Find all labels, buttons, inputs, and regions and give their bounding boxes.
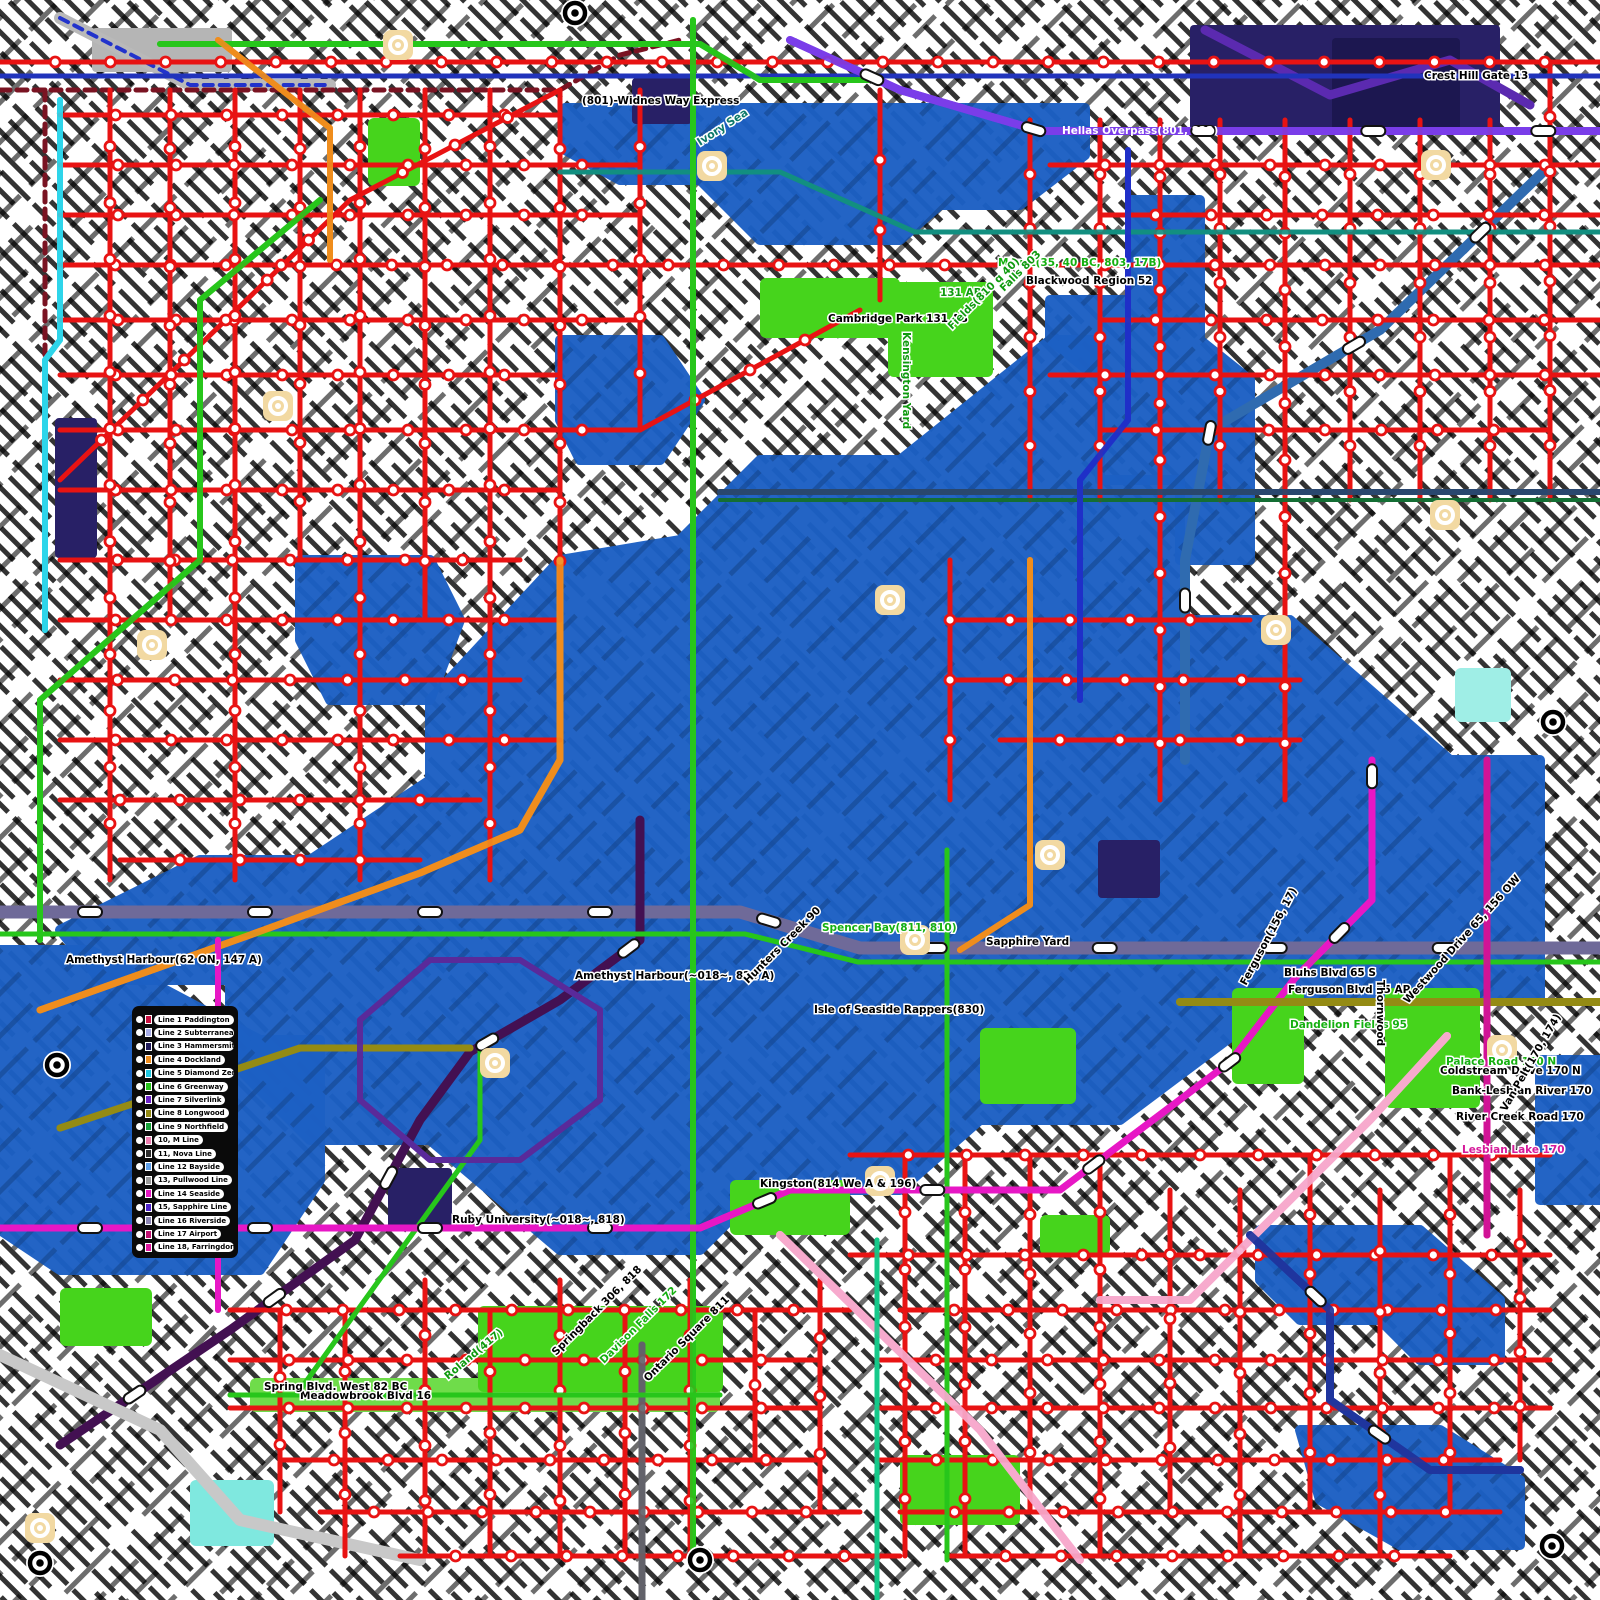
bus-stop[interactable] [1264, 425, 1274, 435]
bus-stop[interactable] [931, 1355, 941, 1365]
bus-stop[interactable] [815, 1391, 825, 1401]
bus-stop[interactable] [1265, 160, 1275, 170]
bus-stop[interactable] [1428, 210, 1438, 220]
bus-stop[interactable] [230, 254, 240, 264]
bus-stop[interactable] [900, 1436, 910, 1446]
bus-stop[interactable] [732, 1305, 742, 1315]
bus-stop[interactable] [1059, 1507, 1069, 1517]
bus-stop[interactable] [1445, 1269, 1455, 1279]
station-pill[interactable] [1361, 126, 1385, 136]
bus-stop[interactable] [987, 1403, 997, 1413]
bus-stop[interactable] [1125, 615, 1135, 625]
bus-stop[interactable] [461, 160, 471, 170]
bus-stop[interactable] [171, 160, 181, 170]
bus-stop[interactable] [304, 235, 314, 245]
bus-stop[interactable] [1280, 285, 1290, 295]
bus-stop[interactable] [519, 315, 529, 325]
bus-stop[interactable] [340, 1428, 350, 1438]
bus-stop[interactable] [1044, 1455, 1054, 1465]
bus-stop[interactable] [1375, 1307, 1385, 1317]
bus-stop[interactable] [230, 706, 240, 716]
bus-stop[interactable] [1095, 1494, 1105, 1504]
bus-stop[interactable] [1266, 1355, 1276, 1365]
bus-stop[interactable] [960, 1322, 970, 1332]
bus-stop[interactable] [1155, 568, 1165, 578]
bus-stop[interactable] [281, 1305, 291, 1315]
bus-stop[interactable] [1305, 1269, 1315, 1279]
bus-stop[interactable] [1095, 1322, 1105, 1332]
bus-stop[interactable] [485, 311, 495, 321]
bus-stop[interactable] [1055, 735, 1065, 745]
bus-stop[interactable] [1375, 1490, 1385, 1500]
bus-stop[interactable] [756, 1355, 766, 1365]
bus-stop[interactable] [355, 141, 365, 151]
bus-stop[interactable] [420, 438, 430, 448]
bus-stop[interactable] [1155, 160, 1165, 170]
bus-stop[interactable] [1265, 370, 1275, 380]
bus-stop[interactable] [579, 1355, 589, 1365]
bus-stop[interactable] [113, 210, 123, 220]
bus-stop[interactable] [485, 198, 495, 208]
bus-stop[interactable] [1178, 675, 1188, 685]
bus-stop[interactable] [1098, 1403, 1108, 1413]
bus-stop[interactable] [1270, 1455, 1280, 1465]
bus-stop[interactable] [1489, 425, 1499, 435]
bus-stop[interactable] [1025, 1388, 1035, 1398]
bus-stop[interactable] [577, 160, 587, 170]
bus-stop[interactable] [1317, 315, 1327, 325]
bus-stop[interactable] [1237, 675, 1247, 685]
bus-stop[interactable] [1378, 1355, 1388, 1365]
bus-stop[interactable] [1334, 1551, 1344, 1561]
bus-stop[interactable] [115, 795, 125, 805]
bus-stop[interactable] [1235, 735, 1245, 745]
bus-stop[interactable] [105, 254, 115, 264]
bus-stop[interactable] [497, 260, 507, 270]
bus-stop[interactable] [105, 762, 115, 772]
bus-stop[interactable] [1220, 1305, 1230, 1315]
bus-stop[interactable] [1375, 1368, 1385, 1378]
bus-stop[interactable] [138, 395, 148, 405]
bus-stop[interactable] [485, 819, 495, 829]
bus-stop[interactable] [388, 485, 398, 495]
bus-stop[interactable] [444, 370, 454, 380]
bus-stop[interactable] [333, 370, 343, 380]
bus-stop[interactable] [437, 1455, 447, 1465]
bus-stop[interactable] [815, 1333, 825, 1343]
bus-stop[interactable] [230, 424, 240, 434]
bus-stop[interactable] [1320, 260, 1330, 270]
yard-icon[interactable] [697, 151, 727, 181]
bus-stop[interactable] [1235, 1307, 1245, 1317]
bus-stop[interactable] [1235, 1368, 1245, 1378]
bus-stop[interactable] [1539, 210, 1549, 220]
bus-stop[interactable] [1515, 1401, 1525, 1411]
bus-stop[interactable] [1280, 568, 1290, 578]
bus-stop[interactable] [105, 198, 115, 208]
bus-stop[interactable] [1025, 169, 1035, 179]
bus-stop[interactable] [485, 1490, 495, 1500]
bus-stop[interactable] [653, 1455, 663, 1465]
bus-stop[interactable] [1274, 1305, 1284, 1315]
bus-stop[interactable] [1430, 260, 1440, 270]
bus-stop[interactable] [577, 315, 587, 325]
bus-stop[interactable] [285, 675, 295, 685]
bus-stop[interactable] [461, 425, 471, 435]
bus-stop[interactable] [697, 1355, 707, 1365]
bus-stop[interactable] [1320, 160, 1330, 170]
bus-stop[interactable] [461, 210, 471, 220]
bus-stop[interactable] [1320, 370, 1330, 380]
bus-stop[interactable] [1115, 735, 1125, 745]
bus-stop[interactable] [161, 57, 171, 67]
bus-stop[interactable] [903, 1150, 913, 1160]
bus-stop[interactable] [562, 1551, 572, 1561]
bus-stop[interactable] [1020, 1250, 1030, 1260]
bus-stop[interactable] [331, 260, 341, 270]
bus-stop[interactable] [345, 210, 355, 220]
bus-stop[interactable] [506, 1551, 516, 1561]
bus-stop[interactable] [620, 1367, 630, 1377]
bus-stop[interactable] [343, 555, 353, 565]
bus-stop[interactable] [1433, 1403, 1443, 1413]
bus-stop[interactable] [420, 1496, 430, 1506]
bus-stop[interactable] [1025, 441, 1035, 451]
bus-stop[interactable] [105, 141, 115, 151]
bus-stop[interactable] [403, 315, 413, 325]
bus-stop[interactable] [499, 485, 509, 495]
bus-stop[interactable] [750, 1380, 760, 1390]
bus-stop[interactable] [1280, 738, 1290, 748]
bus-stop[interactable] [1265, 260, 1275, 270]
bus-stop[interactable] [1025, 332, 1035, 342]
bus-stop[interactable] [503, 113, 513, 123]
bus-stop[interactable] [105, 593, 115, 603]
bus-stop[interactable] [221, 315, 231, 325]
bus-stop[interactable] [875, 225, 885, 235]
bus-stop[interactable] [747, 1507, 757, 1517]
bus-stop[interactable] [635, 368, 645, 378]
bus-stop[interactable] [1485, 332, 1495, 342]
bus-stop[interactable] [839, 1551, 849, 1561]
bus-stop[interactable] [1485, 57, 1495, 67]
bus-stop[interactable] [230, 536, 240, 546]
bus-stop[interactable] [1062, 675, 1072, 685]
bus-stop[interactable] [933, 57, 943, 67]
bus-stop[interactable] [402, 1355, 412, 1365]
bus-stop[interactable] [1373, 315, 1383, 325]
bus-stop[interactable] [402, 1403, 412, 1413]
bus-stop[interactable] [230, 480, 240, 490]
bus-stop[interactable] [277, 485, 287, 495]
bus-stop[interactable] [230, 649, 240, 659]
bus-stop[interactable] [355, 480, 365, 490]
bus-stop[interactable] [547, 57, 557, 67]
bus-stop[interactable] [900, 1379, 910, 1389]
bus-stop[interactable] [105, 536, 115, 546]
bus-stop[interactable] [960, 1379, 970, 1389]
bus-stop[interactable] [165, 262, 175, 272]
bus-stop[interactable] [673, 1551, 683, 1561]
bus-stop[interactable] [577, 425, 587, 435]
bus-stop[interactable] [398, 168, 408, 178]
bus-stop[interactable] [1487, 1250, 1497, 1260]
bus-stop[interactable] [1155, 342, 1165, 352]
bus-stop[interactable] [1215, 278, 1225, 288]
bus-stop[interactable] [175, 855, 185, 865]
bus-stop[interactable] [1078, 1250, 1088, 1260]
bus-stop[interactable] [697, 1403, 707, 1413]
bus-stop[interactable] [555, 144, 565, 154]
bus-stop[interactable] [620, 1305, 630, 1315]
bus-stop[interactable] [884, 260, 894, 270]
bus-stop[interactable] [355, 593, 365, 603]
bus-stop[interactable] [333, 485, 343, 495]
bus-stop[interactable] [284, 1355, 294, 1365]
bus-stop[interactable] [555, 497, 565, 507]
bus-stop[interactable] [745, 365, 755, 375]
bus-stop[interactable] [635, 142, 645, 152]
station-pill[interactable] [1367, 764, 1377, 788]
bus-stop[interactable] [1433, 425, 1443, 435]
bus-stop[interactable] [1266, 1403, 1276, 1413]
bus-stop[interactable] [388, 110, 398, 120]
bus-stop[interactable] [355, 536, 365, 546]
bus-stop[interactable] [444, 615, 454, 625]
bus-stop[interactable] [1137, 1150, 1147, 1160]
bus-stop[interactable] [1112, 1551, 1122, 1561]
bus-stop[interactable] [166, 110, 176, 120]
bus-stop[interactable] [608, 260, 618, 270]
bus-stop[interactable] [620, 1428, 630, 1438]
bus-stop[interactable] [461, 315, 471, 325]
bus-stop[interactable] [229, 210, 239, 220]
bus-stop[interactable] [599, 1455, 609, 1465]
bus-stop[interactable] [1155, 682, 1165, 692]
bus-stop[interactable] [815, 1449, 825, 1459]
bus-stop[interactable] [945, 735, 955, 745]
bus-stop[interactable] [1415, 441, 1425, 451]
bus-stop[interactable] [165, 379, 175, 389]
yard-icon[interactable] [875, 585, 905, 615]
bus-stop[interactable] [1168, 1507, 1178, 1517]
bus-stop[interactable] [635, 255, 645, 265]
bus-stop[interactable] [1215, 169, 1225, 179]
bus-stop[interactable] [230, 367, 240, 377]
bus-stop[interactable] [1280, 398, 1290, 408]
bus-stop[interactable] [499, 735, 509, 745]
bus-stop[interactable] [1539, 315, 1549, 325]
bus-stop[interactable] [165, 144, 175, 154]
bus-stop[interactable] [1484, 210, 1494, 220]
bus-stop[interactable] [1430, 370, 1440, 380]
bus-stop[interactable] [485, 480, 495, 490]
bus-stop[interactable] [166, 735, 176, 745]
bus-stop[interactable] [1345, 441, 1355, 451]
bus-stop[interactable] [1428, 1250, 1438, 1260]
bus-stop[interactable] [485, 424, 495, 434]
bus-stop[interactable] [105, 480, 115, 490]
bus-stop[interactable] [555, 1441, 565, 1451]
bus-stop[interactable] [875, 155, 885, 165]
bus-stop[interactable] [423, 1507, 433, 1517]
bus-stop[interactable] [1223, 1551, 1233, 1561]
bus-stop[interactable] [343, 675, 353, 685]
bus-stop[interactable] [1095, 1265, 1105, 1275]
bus-stop[interactable] [1078, 1150, 1088, 1160]
bus-stop[interactable] [420, 144, 430, 154]
bus-stop[interactable] [784, 1551, 794, 1561]
bus-stop[interactable] [945, 675, 955, 685]
bus-stop[interactable] [663, 260, 673, 270]
bus-stop[interactable] [420, 321, 430, 331]
bus-stop[interactable] [1440, 1507, 1450, 1517]
bus-stop[interactable] [228, 555, 238, 565]
bus-stop[interactable] [1098, 57, 1108, 67]
bus-stop[interactable] [767, 57, 777, 67]
bus-stop[interactable] [355, 367, 365, 377]
bus-stop[interactable] [355, 424, 365, 434]
bus-stop[interactable] [507, 1305, 517, 1315]
bus-stop[interactable] [343, 1403, 353, 1413]
bus-stop[interactable] [1345, 386, 1355, 396]
bus-stop[interactable] [1195, 1250, 1205, 1260]
bus-stop[interactable] [1485, 169, 1495, 179]
bus-stop[interactable] [1545, 112, 1555, 122]
bus-stop[interactable] [1415, 278, 1425, 288]
bus-stop[interactable] [1001, 1551, 1011, 1561]
bus-stop[interactable] [1253, 1150, 1263, 1160]
bus-stop[interactable] [343, 1355, 353, 1365]
bus-stop[interactable] [235, 795, 245, 805]
bus-stop[interactable] [960, 1207, 970, 1217]
bus-stop[interactable] [1137, 1250, 1147, 1260]
bus-stop[interactable] [1113, 1507, 1123, 1517]
bus-stop[interactable] [1345, 169, 1355, 179]
station-pill[interactable] [1531, 126, 1555, 136]
bus-stop[interactable] [420, 556, 430, 566]
bus-stop[interactable] [555, 321, 565, 331]
bus-stop[interactable] [1003, 675, 1013, 685]
bus-stop[interactable] [1485, 370, 1495, 380]
bus-stop[interactable] [1025, 1329, 1035, 1339]
bus-stop[interactable] [1098, 1355, 1108, 1365]
bus-stop[interactable] [1264, 57, 1274, 67]
bus-stop[interactable] [287, 160, 297, 170]
yard-icon[interactable] [1261, 615, 1291, 645]
bus-stop[interactable] [295, 795, 305, 805]
bus-stop[interactable] [388, 370, 398, 380]
bus-stop[interactable] [355, 795, 365, 805]
bus-stop[interactable] [345, 315, 355, 325]
bus-stop[interactable] [1155, 398, 1165, 408]
bus-stop[interactable] [235, 855, 245, 865]
bus-stop[interactable] [275, 1440, 285, 1450]
bus-stop[interactable] [1545, 331, 1555, 341]
bus-stop[interactable] [707, 1455, 717, 1465]
bus-stop[interactable] [1540, 370, 1550, 380]
bus-stop[interactable] [563, 1305, 573, 1315]
bus-stop[interactable] [170, 675, 180, 685]
bus-stop[interactable] [1120, 675, 1130, 685]
bus-stop[interactable] [369, 1507, 379, 1517]
bus-stop[interactable] [940, 260, 950, 270]
station-pill[interactable] [418, 1223, 442, 1233]
yard-icon[interactable] [1430, 500, 1460, 530]
bus-stop[interactable] [171, 425, 181, 435]
bus-stop[interactable] [756, 1403, 766, 1413]
bus-stop[interactable] [962, 1250, 972, 1260]
bus-stop[interactable] [165, 556, 175, 566]
bus-stop[interactable] [900, 1322, 910, 1332]
bus-stop[interactable] [1210, 1403, 1220, 1413]
bus-stop[interactable] [1100, 1455, 1110, 1465]
station-pill[interactable] [418, 907, 442, 917]
yard-icon[interactable] [1421, 150, 1451, 180]
bus-stop[interactable] [295, 855, 305, 865]
bus-stop[interactable] [420, 379, 430, 389]
bus-stop[interactable] [111, 615, 121, 625]
bus-stop[interactable] [635, 312, 645, 322]
bus-stop[interactable] [1382, 1455, 1392, 1465]
bus-stop[interactable] [175, 795, 185, 805]
bus-stop[interactable] [1345, 278, 1355, 288]
bus-stop[interactable] [1157, 1455, 1167, 1465]
bus-stop[interactable] [962, 1150, 972, 1160]
bus-stop[interactable] [1155, 172, 1165, 182]
bus-stop[interactable] [1375, 1246, 1385, 1256]
bus-stop[interactable] [277, 110, 287, 120]
bus-stop[interactable] [1206, 315, 1216, 325]
bus-stop[interactable] [1065, 615, 1075, 625]
bus-stop[interactable] [1545, 167, 1555, 177]
bus-stop[interactable] [945, 615, 955, 625]
bus-stop[interactable] [222, 110, 232, 120]
bus-stop[interactable] [355, 254, 365, 264]
bus-stop[interactable] [635, 198, 645, 208]
bus-stop[interactable] [719, 260, 729, 270]
bus-stop[interactable] [1095, 1436, 1105, 1446]
bus-stop[interactable] [1545, 386, 1555, 396]
bus-stop[interactable] [491, 1455, 501, 1465]
bus-stop[interactable] [1305, 1210, 1315, 1220]
bus-stop[interactable] [1206, 210, 1216, 220]
bus-stop[interactable] [1167, 1551, 1177, 1561]
bus-stop[interactable] [444, 110, 454, 120]
bus-stop[interactable] [519, 160, 529, 170]
bus-stop[interactable] [388, 615, 398, 625]
bus-stop[interactable] [485, 649, 495, 659]
bus-stop[interactable] [340, 1490, 350, 1500]
bus-stop[interactable] [355, 649, 365, 659]
bus-stop[interactable] [1485, 278, 1495, 288]
bus-stop[interactable] [1095, 1379, 1105, 1389]
bus-stop[interactable] [1209, 57, 1219, 67]
bus-stop[interactable] [1215, 332, 1225, 342]
bus-stop[interactable] [1376, 425, 1386, 435]
bus-stop[interactable] [1262, 210, 1272, 220]
bus-stop[interactable] [789, 1305, 799, 1315]
bus-stop[interactable] [436, 57, 446, 67]
bus-stop[interactable] [1213, 1455, 1223, 1465]
bus-stop[interactable] [1235, 1490, 1245, 1500]
bus-stop[interactable] [485, 706, 495, 716]
bus-stop[interactable] [531, 1507, 541, 1517]
bus-stop[interactable] [355, 819, 365, 829]
bus-stop[interactable] [230, 819, 240, 829]
bus-stop[interactable] [900, 1494, 910, 1504]
bus-stop[interactable] [96, 435, 106, 445]
